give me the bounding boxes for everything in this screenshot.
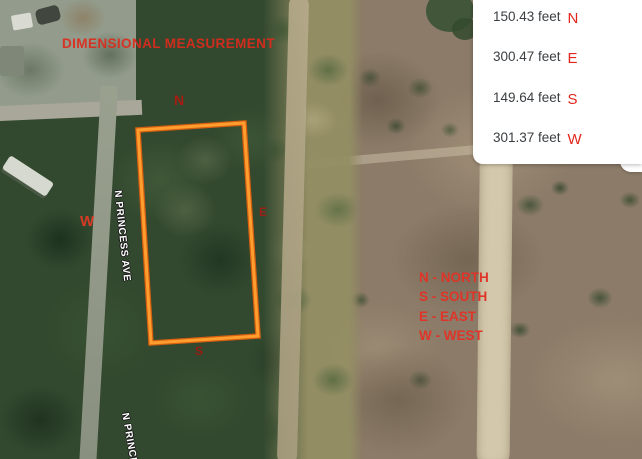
legend-line-south: S - SOUTH [419,287,489,306]
parcel-label-south: S [195,344,203,358]
measurement-direction: W [567,131,581,148]
vehicle [34,4,61,26]
building [0,46,24,76]
measurement-direction: S [567,91,577,108]
legend-line-east: E - EAST [419,307,489,326]
page-title: DIMENSIONAL MEASUREMENT [62,36,275,51]
measurement-direction: E [567,50,577,67]
compass-legend: N - NORTH S - SOUTH E - EAST W - WEST [419,268,489,346]
measurement-panel: 150.43 feet N 300.47 feet E 149.64 feet … [473,0,642,164]
measurement-value: 149.64 feet [493,90,559,105]
measurement-value: 301.37 feet [493,130,559,145]
measurement-direction: N [567,10,578,27]
measurement-value: 300.47 feet [493,49,559,64]
building-roof [11,12,33,30]
dimensional-measurement-screen: N E S W N PRINCESS AVE N PRINCESS AVE N … [0,0,642,459]
parcel-label-west: W [80,213,94,230]
legend-line-west: W - WEST [419,326,489,345]
parcel-label-east: E [259,205,267,219]
measurement-value: 150.43 feet [493,9,559,24]
measurement-row: 300.47 feet E [493,48,577,68]
measurement-row: 149.64 feet S [493,89,577,109]
measurement-row: 150.43 feet N [493,8,578,28]
legend-line-north: N - NORTH [419,268,489,287]
measurement-row: 301.37 feet W [493,129,582,149]
parcel-label-north: N [174,92,184,108]
